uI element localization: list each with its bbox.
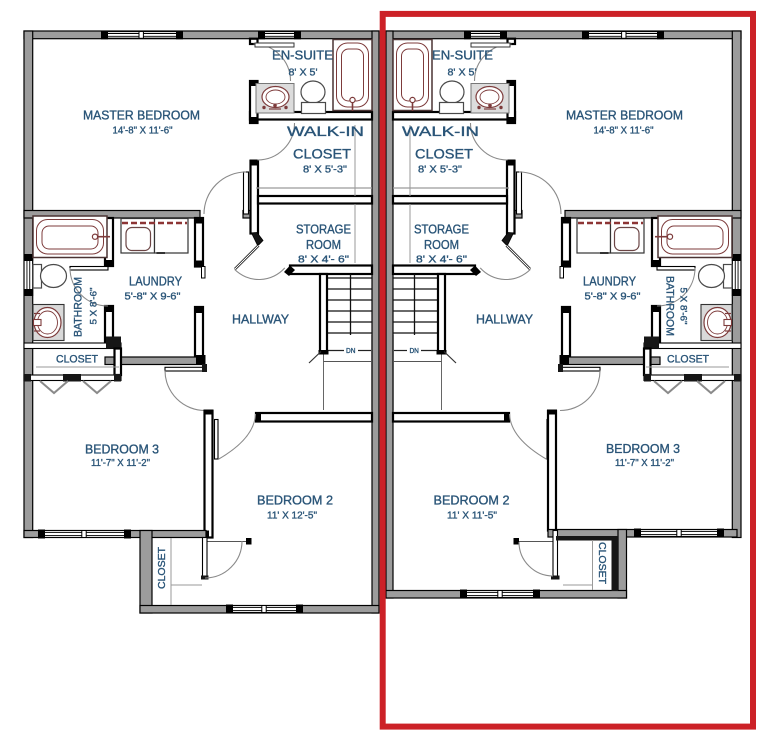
svg-text:11'-7" X 11'-2": 11'-7" X 11'-2" — [615, 458, 674, 469]
svg-text:CLOSET: CLOSET — [415, 146, 473, 162]
svg-text:BEDROOM 3: BEDROOM 3 — [85, 442, 159, 457]
svg-text:DN: DN — [346, 348, 356, 355]
svg-text:HALLWAY: HALLWAY — [476, 312, 533, 327]
svg-text:ROOM: ROOM — [306, 238, 341, 252]
svg-text:BATHROOM: BATHROOM — [664, 276, 676, 336]
svg-text:8' X 5'-3": 8' X 5'-3" — [303, 165, 348, 176]
svg-text:8' X 4'- 6": 8' X 4'- 6" — [298, 255, 350, 266]
svg-text:HALLWAY: HALLWAY — [232, 312, 289, 327]
svg-text:11' X 12'-5": 11' X 12'-5" — [267, 511, 317, 522]
svg-text:BEDROOM 2: BEDROOM 2 — [257, 493, 333, 508]
svg-text:WALK-IN: WALK-IN — [402, 123, 479, 139]
svg-text:BATHROOM: BATHROOM — [73, 277, 85, 337]
svg-text:5'-8" X 9-6": 5'-8" X 9-6" — [585, 292, 641, 303]
svg-text:BEDROOM 3: BEDROOM 3 — [606, 441, 680, 456]
svg-text:CLOSET: CLOSET — [667, 354, 709, 366]
svg-text:LAUNDRY: LAUNDRY — [129, 275, 183, 289]
svg-text:8' X 5': 8' X 5' — [289, 68, 318, 79]
svg-text:CLOSET: CLOSET — [157, 547, 168, 589]
svg-text:8' X 5': 8' X 5' — [448, 68, 477, 79]
svg-text:5 X 8'-6": 5 X 8'-6" — [678, 288, 689, 325]
svg-text:11' X 11'-5": 11' X 11'-5" — [447, 511, 497, 522]
svg-text:LAUNDRY: LAUNDRY — [583, 275, 637, 289]
svg-text:8' X 5'-3": 8' X 5'-3" — [418, 165, 463, 176]
svg-text:5 X 8'-6": 5 X 8'-6" — [89, 288, 100, 325]
svg-text:8' X 4'- 6": 8' X 4'- 6" — [416, 255, 468, 266]
svg-text:CLOSET: CLOSET — [596, 542, 607, 584]
svg-text:BEDROOM 2: BEDROOM 2 — [434, 493, 510, 508]
svg-text:DN: DN — [409, 348, 419, 355]
svg-text:11'-7" X 11'-2": 11'-7" X 11'-2" — [91, 458, 150, 469]
svg-text:14'-8" X 11'-6": 14'-8" X 11'-6" — [113, 126, 173, 137]
svg-text:STORAGE: STORAGE — [414, 223, 469, 237]
svg-text:EN-SUITE: EN-SUITE — [272, 48, 333, 63]
svg-text:STORAGE: STORAGE — [296, 223, 351, 237]
svg-text:MASTER BEDROOM: MASTER BEDROOM — [83, 108, 200, 123]
svg-text:MASTER BEDROOM: MASTER BEDROOM — [566, 108, 683, 123]
svg-text:CLOSET: CLOSET — [56, 354, 98, 366]
svg-text:5'-8" X 9-6": 5'-8" X 9-6" — [125, 292, 181, 303]
svg-text:EN-SUITE: EN-SUITE — [432, 48, 493, 63]
svg-text:WALK-IN: WALK-IN — [287, 123, 364, 139]
svg-text:ROOM: ROOM — [424, 238, 459, 252]
svg-text:14'-8" X 11'-6": 14'-8" X 11'-6" — [594, 126, 654, 137]
svg-text:CLOSET: CLOSET — [293, 146, 351, 162]
